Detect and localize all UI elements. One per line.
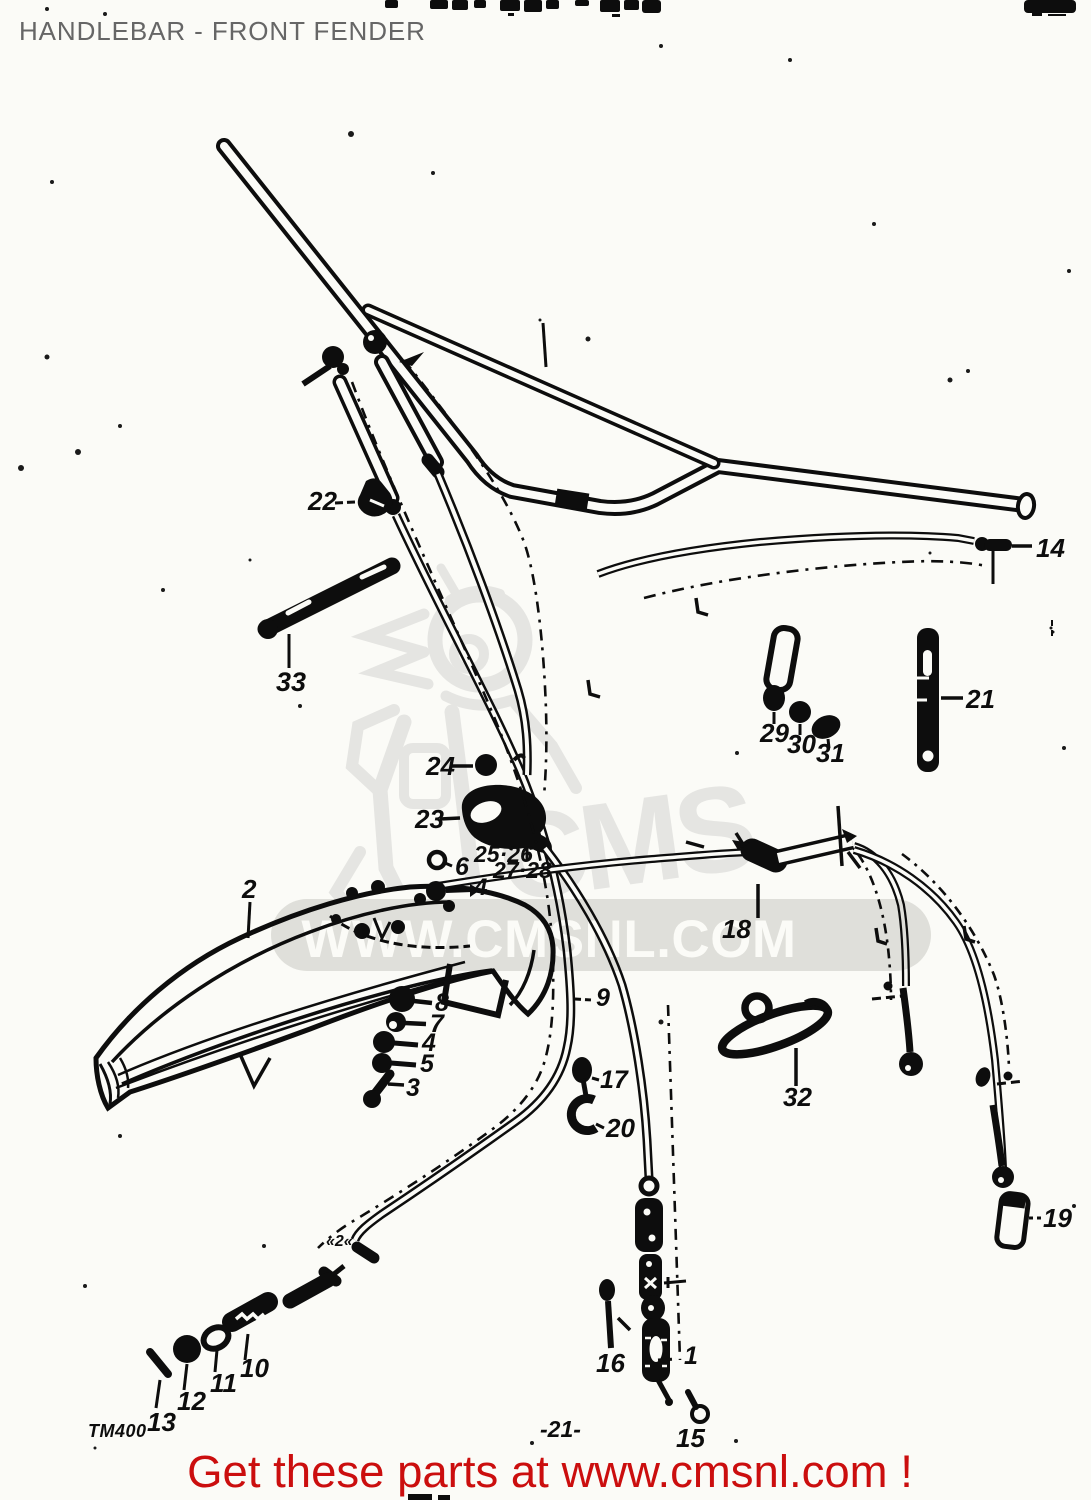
svg-text:Get these parts at www.cmsnl.c: Get these parts at www.cmsnl.com ! xyxy=(187,1446,913,1497)
svg-text:11: 11 xyxy=(210,1368,237,1398)
svg-text:19: 19 xyxy=(1043,1203,1072,1233)
svg-text:12: 12 xyxy=(177,1386,206,1416)
svg-text:-21-: -21- xyxy=(540,1416,581,1442)
svg-text:4: 4 xyxy=(473,874,487,901)
svg-text:32: 32 xyxy=(783,1082,812,1112)
svg-text:33: 33 xyxy=(276,667,306,697)
svg-text:14: 14 xyxy=(1036,533,1065,563)
svg-text:16: 16 xyxy=(596,1348,625,1378)
svg-text:29: 29 xyxy=(759,718,789,748)
svg-text:31: 31 xyxy=(816,738,845,768)
svg-text:24: 24 xyxy=(425,751,455,781)
svg-text:23: 23 xyxy=(414,804,444,834)
svg-text:5: 5 xyxy=(420,1050,435,1078)
svg-text:HANDLEBAR - FRONT FENDER: HANDLEBAR - FRONT FENDER xyxy=(19,16,426,46)
svg-text:22: 22 xyxy=(307,486,337,516)
svg-text:1: 1 xyxy=(684,1342,698,1370)
svg-text:20: 20 xyxy=(605,1113,635,1143)
svg-text:27·28: 27·28 xyxy=(492,857,552,883)
svg-text:2: 2 xyxy=(241,874,257,904)
svg-text:17: 17 xyxy=(600,1066,629,1094)
svg-text:3: 3 xyxy=(406,1074,420,1102)
svg-text:13: 13 xyxy=(147,1407,176,1437)
svg-text:10: 10 xyxy=(240,1353,269,1383)
svg-text:6: 6 xyxy=(455,853,470,881)
svg-text:9: 9 xyxy=(596,984,610,1012)
svg-text:30: 30 xyxy=(787,729,816,759)
svg-text:«2«: «2« xyxy=(326,1233,353,1250)
svg-text:21: 21 xyxy=(965,684,995,714)
svg-text:TM400: TM400 xyxy=(88,1421,147,1441)
